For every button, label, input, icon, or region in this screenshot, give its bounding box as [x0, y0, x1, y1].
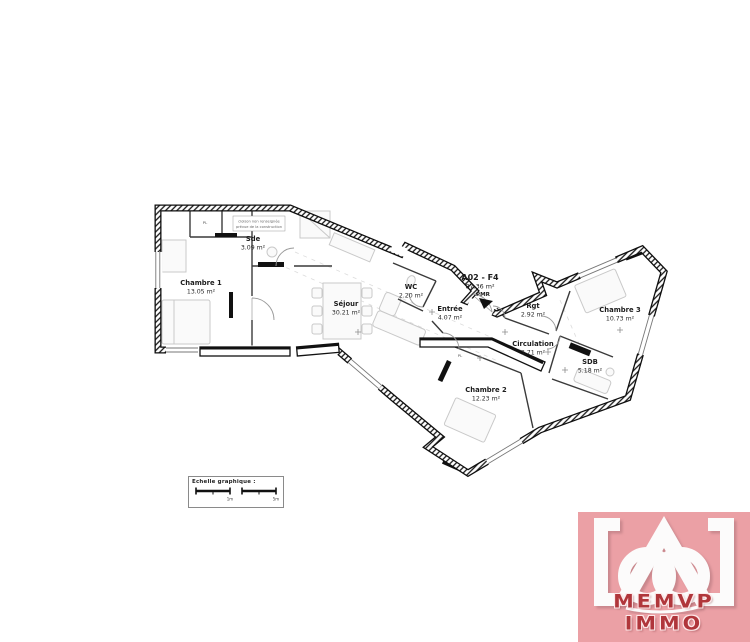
note-line-1: cloison non renseignée: [238, 220, 280, 224]
basin-sde: [267, 247, 277, 257]
room-name-sejour: Séjour: [334, 300, 359, 308]
room-area-entree: 4.07 m²: [438, 315, 463, 322]
room-name-entree: Entrée: [437, 305, 463, 313]
room-name-sdb: SDB: [582, 358, 598, 366]
room-area-sdb: 5.18 m²: [578, 368, 603, 375]
graphic-scale: Echelle graphique : 1m 5m: [188, 476, 284, 508]
room-area-chambre1: 13.05 m²: [187, 289, 216, 296]
page: cloison non renseignée prévue de la cons…: [0, 0, 750, 642]
room-name-sde: Sde: [246, 235, 261, 243]
room-name-wc: WC: [405, 283, 418, 291]
unit-id: A02 - F4: [461, 273, 499, 282]
room-area-sde: 3.09 m²: [241, 245, 266, 252]
agency-brand-text: MEMVP IMMO: [575, 590, 750, 634]
railing-1: [200, 347, 290, 356]
room-area-sejour: 30.21 m²: [332, 310, 361, 317]
scale-label-5m: 5m: [273, 497, 280, 502]
room-area-chambre3: 10.73 m²: [606, 316, 635, 323]
room-area-rgt: 2.92 m²: [521, 312, 546, 319]
window-bottom-left: [166, 346, 200, 355]
room-name-chambre3: Chambre 3: [599, 306, 641, 314]
room-name-chambre2: Chambre 2: [465, 386, 507, 394]
wardrobe-chambre1: [162, 240, 186, 272]
note-line-2: prévue de la construction: [236, 225, 282, 229]
room-name-circulation: Circulation: [512, 340, 554, 348]
room-area-circulation: 3.71 m²: [521, 350, 546, 357]
scale-label-1m: 1m: [227, 497, 234, 502]
basin-sdb: [606, 368, 614, 376]
graphic-scale-title: Echelle graphique :: [192, 479, 280, 485]
agency-logo: MEMVP IMMO: [578, 512, 750, 642]
room-area-wc: 2.20 m²: [399, 293, 424, 300]
unit-total-area: 87.36 m²: [465, 283, 495, 291]
unit-pmr-tag: PMR: [476, 292, 491, 298]
scale-bars: 1m 5m: [192, 486, 280, 502]
window-left-wall: [154, 252, 163, 288]
construction-note: cloison non renseignée prévue de la cons…: [233, 216, 285, 231]
room-name-chambre1: Chambre 1: [180, 279, 222, 287]
bed-chambre1: [162, 300, 210, 344]
room-name-rgt: Rgt: [526, 302, 540, 310]
room-area-chambre2: 12.23 m²: [472, 396, 501, 403]
